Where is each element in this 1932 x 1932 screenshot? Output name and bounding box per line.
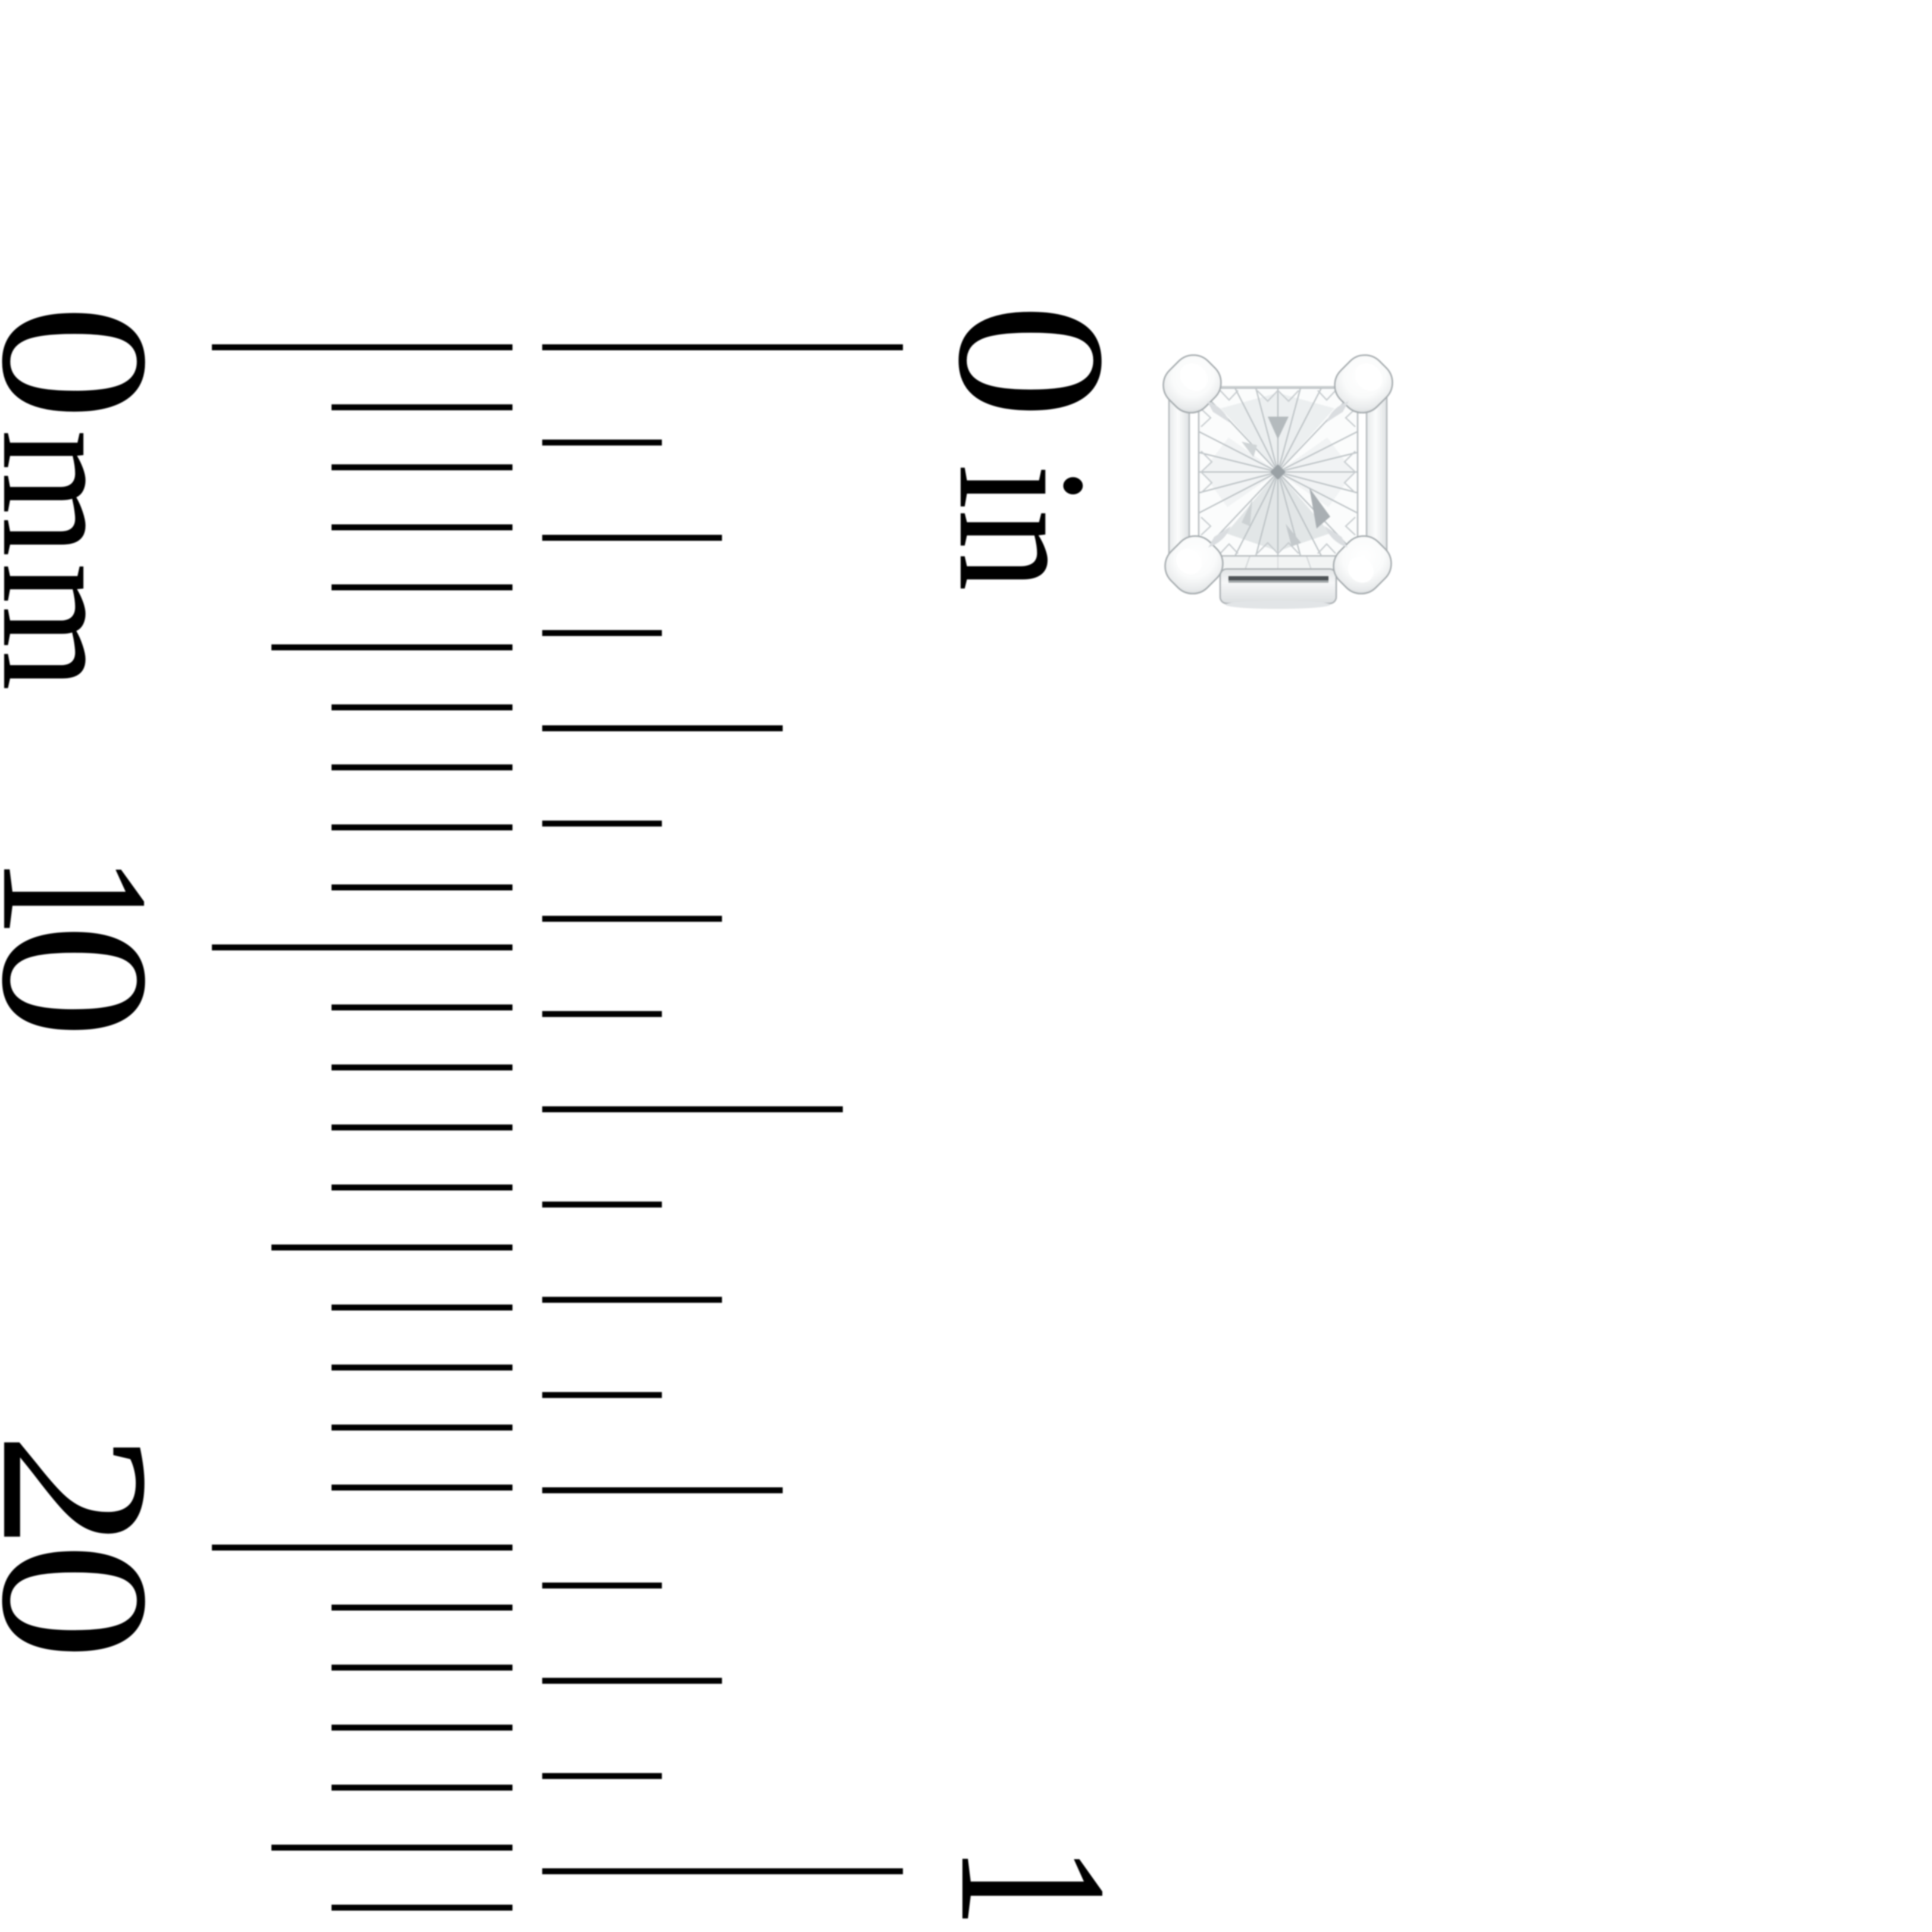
svg-text:0: 0 xyxy=(0,1542,192,1661)
svg-text:2: 2 xyxy=(0,1432,192,1550)
svg-text:0: 0 xyxy=(914,303,1149,420)
svg-text:1: 1 xyxy=(916,1844,1151,1928)
svg-text:in: in xyxy=(920,464,1124,591)
svg-text:m: m xyxy=(0,430,158,557)
svg-text:0: 0 xyxy=(0,304,192,421)
svg-text:0: 0 xyxy=(0,923,192,1039)
svg-text:m: m xyxy=(0,563,158,691)
